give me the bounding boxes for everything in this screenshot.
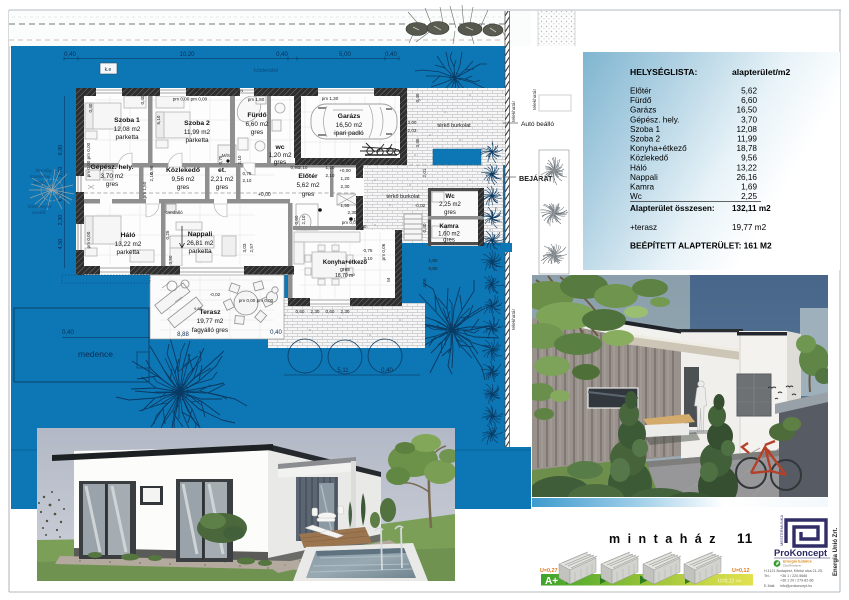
svg-text:Háló: Háló — [630, 163, 647, 172]
svg-text:3,70: 3,70 — [741, 115, 757, 124]
svg-text:gres: gres — [106, 181, 118, 188]
svg-text:Gépész. hely.: Gépész. hely. — [91, 164, 134, 171]
svg-text:terület: terület — [34, 180, 46, 185]
svg-text:6,60 m2: 6,60 m2 — [245, 121, 269, 128]
svg-text:parketta: parketta — [188, 248, 212, 255]
svg-text:0,40: 0,40 — [62, 330, 74, 336]
svg-text:2,21 m2: 2,21 m2 — [210, 176, 234, 183]
svg-text:2,25: 2,25 — [741, 192, 757, 201]
svg-text:0,40: 0,40 — [270, 330, 282, 336]
svg-text:26,16: 26,16 — [737, 173, 758, 182]
svg-text:16,50: 16,50 — [737, 106, 758, 115]
svg-text:0,25: 0,25 — [165, 230, 170, 239]
svg-text:Garázs: Garázs — [338, 113, 361, 120]
svg-text:0,40: 0,40 — [385, 52, 397, 58]
svg-text:132,11 m2: 132,11 m2 — [732, 204, 771, 213]
svg-text:0,40: 0,40 — [422, 223, 427, 232]
svg-text:parketta: parketta — [116, 249, 140, 256]
svg-text:pm 0,00 pm 0,00: pm 0,00 pm 0,00 — [86, 142, 91, 177]
svg-text:+0,00: +0,00 — [338, 161, 351, 167]
svg-text:U=0,12: U=0,12 — [732, 568, 750, 574]
svg-text:m i n t a h á z: m i n t a h á z — [609, 532, 718, 546]
svg-text:parketta: parketta — [115, 134, 139, 141]
svg-text:2,10: 2,10 — [149, 172, 154, 181]
svg-text:1,69: 1,69 — [741, 183, 757, 192]
svg-text:MESTERMUNKA: MESTERMUNKA — [779, 515, 784, 546]
svg-text:11: 11 — [737, 531, 753, 546]
svg-text:9,56: 9,56 — [741, 154, 757, 163]
svg-text:pm 0,00: pm 0,00 — [86, 231, 91, 248]
svg-text:1,20: 1,20 — [354, 217, 363, 222]
svg-text:2,03: 2,03 — [408, 128, 417, 133]
svg-text:-0,02: -0,02 — [210, 292, 221, 297]
svg-text:közterület: közterület — [254, 68, 278, 74]
svg-text:2,10: 2,10 — [301, 215, 306, 224]
svg-text:Terasz: Terasz — [199, 309, 221, 316]
svg-text:Wc: Wc — [445, 193, 455, 200]
svg-text:0,75: 0,75 — [364, 248, 373, 253]
svg-text:+0,00: +0,00 — [339, 168, 351, 173]
svg-text:telekhatár: telekhatár — [511, 101, 517, 122]
svg-text:6,60: 6,60 — [741, 96, 757, 105]
svg-text:A+: A+ — [545, 576, 558, 587]
svg-text:wc: wc — [274, 144, 284, 151]
svg-text:Közlekedő: Közlekedő — [166, 167, 200, 174]
svg-text:2,10: 2,10 — [299, 165, 308, 170]
svg-text:2,10: 2,10 — [326, 173, 335, 178]
svg-text:Fürdő: Fürdő — [247, 112, 266, 119]
svg-text:0,40: 0,40 — [415, 93, 420, 102]
svg-text:térkő burkolat: térkő burkolat — [386, 194, 420, 200]
svg-text:2,30: 2,30 — [348, 210, 357, 215]
svg-text:9,88: 9,88 — [194, 306, 203, 311]
svg-text:medence: medence — [78, 349, 113, 359]
svg-text:Fürdő: Fürdő — [630, 96, 652, 105]
svg-text:Konyha+étkező: Konyha+étkező — [323, 260, 368, 266]
svg-text:19,77 m2: 19,77 m2 — [197, 318, 224, 325]
svg-text:Szoba 2: Szoba 2 — [184, 120, 210, 127]
svg-text:1,50: 1,50 — [429, 258, 438, 263]
svg-text:Konyha+étkező: Konyha+étkező — [630, 144, 687, 153]
svg-text:3,70 m2: 3,70 m2 — [100, 173, 124, 180]
svg-text:gres: gres — [274, 159, 286, 166]
svg-text:M: M — [386, 278, 391, 282]
svg-text:1,55: 1,55 — [341, 203, 350, 208]
svg-text:gres: gres — [302, 191, 314, 198]
svg-text:Nappali: Nappali — [630, 173, 658, 182]
svg-text:Előtér: Előtér — [298, 173, 318, 180]
svg-text:Garázs: Garázs — [630, 106, 656, 115]
svg-text:H-1121 Budapest, Kőrösi utca 2: H-1121 Budapest, Kőrösi utca 21-25. — [764, 569, 823, 573]
svg-text:Alapterület összesen:: Alapterület összesen: — [630, 204, 715, 213]
svg-text:11,99 m2: 11,99 m2 — [184, 129, 211, 136]
svg-text:gres: gres — [216, 184, 228, 191]
svg-text:közműig: közműig — [36, 168, 52, 173]
svg-text:18,70 m²: 18,70 m² — [335, 273, 355, 279]
svg-text:Kamra: Kamra — [439, 223, 459, 230]
svg-text:2,30: 2,30 — [341, 309, 350, 314]
svg-text:Zöld Rendszer: Zöld Rendszer — [783, 564, 801, 568]
svg-text:Szoba 1: Szoba 1 — [630, 125, 660, 134]
svg-text:Kamra: Kamra — [630, 183, 655, 192]
svg-text:6,90: 6,90 — [58, 145, 64, 156]
svg-text:parketta: parketta — [185, 137, 209, 144]
svg-text:26,81 m2: 26,81 m2 — [187, 240, 214, 247]
svg-text:+36 1 20 / 279-82-86: +36 1 20 / 279-82-86 — [780, 579, 813, 583]
svg-text:4,00: 4,00 — [422, 278, 427, 287]
svg-text:5,10: 5,10 — [156, 115, 161, 124]
svg-text:pm 1,50: pm 1,50 — [142, 181, 147, 198]
svg-text:Kandalló: Kandalló — [164, 210, 183, 216]
svg-text:0,50: 0,50 — [429, 266, 438, 271]
svg-text:pm 1,30: pm 1,30 — [322, 96, 339, 101]
svg-text:5,00: 5,00 — [339, 52, 351, 58]
svg-text:0,40: 0,40 — [64, 52, 76, 58]
svg-text:k.e: k.e — [105, 67, 112, 73]
svg-text:pm 1,80: pm 1,80 — [248, 97, 265, 102]
svg-text:0,75: 0,75 — [218, 155, 223, 164]
svg-text:3,35: 3,35 — [415, 138, 420, 147]
svg-text:telekhatár: telekhatár — [532, 89, 538, 110]
svg-text:3,00: 3,00 — [408, 120, 417, 125]
svg-text:+terasz: +terasz — [630, 223, 657, 232]
svg-text:Szoba 1: Szoba 1 — [114, 117, 140, 124]
svg-text:16,50 m2: 16,50 m2 — [336, 122, 363, 129]
svg-text:Nappali: Nappali — [188, 231, 213, 238]
svg-text:1,20: 1,20 — [341, 176, 350, 181]
svg-text:Autó beálló: Autó beálló — [521, 121, 554, 128]
svg-text:12,08 m2: 12,08 m2 — [114, 126, 141, 133]
svg-text:gres: gres — [443, 238, 455, 244]
svg-text:gres: gres — [251, 129, 263, 136]
svg-text:Tel.:: Tel.: — [764, 574, 771, 578]
svg-text:fagyálló gres: fagyálló gres — [192, 327, 228, 334]
svg-text:térkő burkolat: térkő burkolat — [437, 123, 471, 129]
svg-text:8,88: 8,88 — [177, 332, 189, 338]
svg-text:5,62: 5,62 — [741, 87, 757, 96]
svg-text:+0,00: +0,00 — [258, 192, 271, 198]
svg-text:5 N: 5 N — [237, 88, 243, 93]
svg-text:Közlekedő: Közlekedő — [630, 154, 669, 163]
svg-text:2,10: 2,10 — [243, 178, 252, 183]
svg-text:0,60: 0,60 — [296, 309, 305, 314]
svg-text:BEÉPÍTETT ALAPTERÜLET: 161 M2: BEÉPÍTETT ALAPTERÜLET: 161 M2 — [630, 240, 772, 251]
svg-text:ProKoncept: ProKoncept — [774, 547, 827, 558]
svg-text:3,03: 3,03 — [242, 243, 247, 252]
svg-text:Háló: Háló — [121, 232, 136, 239]
svg-text:pm 0,00 pm 0,00: pm 0,00 pm 0,00 — [173, 97, 208, 102]
svg-text:3,50: 3,50 — [168, 255, 173, 264]
svg-text:Wc: Wc — [630, 192, 642, 201]
svg-text:2,30: 2,30 — [358, 224, 367, 229]
svg-text:+36 1 / 220-9686: +36 1 / 220-9686 — [780, 574, 807, 578]
svg-text:Gépész. hely.: Gépész. hely. — [630, 115, 679, 124]
svg-text:gres: gres — [177, 184, 189, 191]
svg-text:2,57: 2,57 — [249, 243, 254, 252]
svg-text:2,30: 2,30 — [311, 309, 320, 314]
svg-text:4,50: 4,50 — [58, 239, 64, 250]
svg-text:U=0,12 >>: U=0,12 >> — [718, 579, 742, 585]
svg-text:E-Mail:: E-Mail: — [764, 584, 775, 588]
svg-text:et.: et. — [218, 167, 226, 174]
svg-text:12,08: 12,08 — [737, 125, 758, 134]
svg-text:0,60: 0,60 — [294, 215, 299, 224]
svg-text:5 N 5 N: 5 N 5 N — [193, 88, 207, 93]
svg-text:alapterület/m2: alapterület/m2 — [732, 67, 790, 77]
svg-text:0,40: 0,40 — [88, 103, 93, 112]
svg-text:0,60: 0,60 — [326, 309, 335, 314]
svg-text:gres: gres — [444, 210, 456, 216]
svg-text:szerelvény: szerelvény — [30, 174, 51, 179]
svg-text:HELYSÉGLISTA:: HELYSÉGLISTA: — [630, 67, 697, 77]
svg-text:18,78: 18,78 — [737, 144, 758, 153]
svg-text:-0,02: -0,02 — [415, 203, 426, 208]
svg-text:2,10: 2,10 — [237, 155, 242, 164]
svg-text:telekhatár: telekhatár — [511, 309, 517, 330]
svg-text:9,56 m2: 9,56 m2 — [171, 176, 195, 183]
svg-text:ipari padló: ipari padló — [334, 130, 364, 137]
svg-text:2,01: 2,01 — [422, 168, 427, 177]
svg-text:U=0,27: U=0,27 — [540, 568, 558, 574]
svg-text:2,30: 2,30 — [58, 215, 64, 226]
svg-text:13,22: 13,22 — [737, 163, 758, 172]
svg-text:2,25 m2: 2,25 m2 — [439, 202, 461, 208]
svg-text:pm 0,00 pm 0,00: pm 0,00 pm 0,00 — [239, 298, 274, 303]
svg-text:0,40: 0,40 — [276, 52, 288, 58]
svg-text:hőveszteyes: hőveszteyes — [28, 204, 51, 209]
svg-text:1,20: 1,20 — [326, 165, 335, 170]
svg-text:Energia Unió Zrt.: Energia Unió Zrt. — [833, 527, 839, 576]
svg-text:0,75: 0,75 — [243, 171, 252, 176]
svg-text:10,20: 10,20 — [179, 52, 195, 58]
svg-text:2,30: 2,30 — [341, 184, 350, 189]
svg-text:szerkőt: szerkőt — [32, 210, 46, 215]
svg-text:info@prokoncept.hu: info@prokoncept.hu — [780, 584, 812, 588]
svg-text:5,62 m2: 5,62 m2 — [296, 182, 320, 189]
svg-text:Előtér: Előtér — [630, 87, 652, 96]
svg-text:11,99: 11,99 — [737, 135, 757, 144]
svg-text:0,40: 0,40 — [140, 95, 145, 104]
svg-text:2,10: 2,10 — [364, 256, 373, 261]
svg-text:Szoba 2: Szoba 2 — [630, 135, 660, 144]
svg-text:13,22 m2: 13,22 m2 — [115, 241, 142, 248]
svg-text:pm 0,06: pm 0,06 — [381, 243, 386, 260]
svg-text:1,20 m2: 1,20 m2 — [268, 152, 292, 159]
svg-text:19,77 m2: 19,77 m2 — [732, 223, 767, 232]
